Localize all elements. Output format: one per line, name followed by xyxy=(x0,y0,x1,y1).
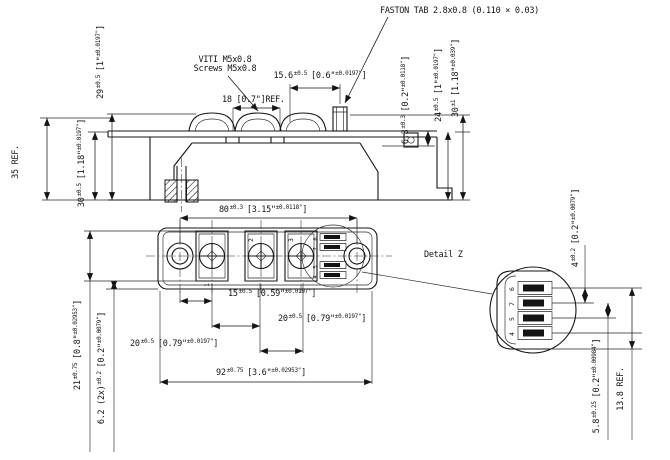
faston-leader-line xyxy=(345,17,388,103)
dim-5-8-label: 5.8±0.25[0.2"±0.00984"] xyxy=(591,339,602,434)
terminal-domes xyxy=(189,113,326,131)
detail-terminal-number-4: 4 xyxy=(508,332,516,336)
detail-tab-contacts xyxy=(523,285,544,337)
dim-30-left-label: 30±0.5[1.18"±0.0197"] xyxy=(76,119,87,207)
dim-6-3-label: 6.3±0.3[0.2"±0.0118"] xyxy=(400,56,411,144)
dim-6-2-label: 6.2 (2x)±0.2[0.2"±0.0079"] xyxy=(96,312,107,424)
detail-z-label: Detail Z xyxy=(424,250,463,260)
mounting-bolt-section xyxy=(165,158,198,212)
technical-drawing-page: FASTON TAB 2.8x0.8 (0.110 × 0.03) VITI M… xyxy=(0,0,670,460)
faston-tab-note: FASTON TAB 2.8x0.8 (0.110 × 0.03) xyxy=(380,6,539,16)
faston-tab-detail-lines xyxy=(333,107,347,131)
dim-35-label: 35 REF. xyxy=(11,145,21,179)
terminal-domes-inner xyxy=(195,119,320,131)
aux-terminal-number-5: 5 xyxy=(313,265,319,268)
detail-terminal-number-7: 7 xyxy=(508,302,516,306)
detail-terminal-number-5: 5 xyxy=(508,317,516,321)
bolt-hatch-right xyxy=(187,180,199,202)
dim-21-label: 21±0.75[0.8"±0.02953"] xyxy=(72,300,83,390)
dim-80-label: 80±0.3[3.15"±0.0118"] xyxy=(219,204,307,215)
module-outline-drawing: FASTON TAB 2.8x0.8 (0.110 × 0.03) VITI M… xyxy=(0,0,670,460)
aux-terminal-number-7: 7 xyxy=(313,247,319,250)
faston-tab-body xyxy=(333,107,347,131)
dim-20-right-label: 20±0.5[0.79"±0.0197"] xyxy=(278,313,366,324)
bolt-hatch-left xyxy=(165,180,177,202)
detail-circle xyxy=(490,267,576,353)
dim-30-right-label: 30±1[1.18"±0.039"] xyxy=(450,39,461,117)
screws-leader-line xyxy=(228,76,258,111)
terminal-number-1: 1 xyxy=(203,283,211,287)
aux-terminal-number-6: 6 xyxy=(313,237,319,240)
top-notches xyxy=(226,137,284,143)
extension-lines xyxy=(40,84,642,452)
module-inner-outline xyxy=(163,232,372,285)
dim-20-left-label: 20±0.5[0.79"±0.0197"] xyxy=(130,338,218,349)
dim-92-label: 92±0.75[3.6"±0.02953"] xyxy=(216,367,306,378)
terminal-number-3: 3 xyxy=(287,238,295,242)
dim-29-label: 29±0.5[1"±0.0197"] xyxy=(95,25,106,99)
dim-13-8-label: 13.8 REF. xyxy=(616,367,626,410)
faston-tab-side xyxy=(333,107,347,131)
detail-z-view xyxy=(362,267,576,353)
terminal-number-2: 2 xyxy=(247,238,255,242)
dim-18-label: 18 [0.7"]REF. xyxy=(222,95,285,105)
dim-15-6-label: 15.6±0.5[0.6"±0.0197"] xyxy=(274,70,367,81)
detail-leader-line xyxy=(362,272,492,294)
dim-24-label: 24±0.5[1"±0.0197"] xyxy=(433,48,444,122)
screws-note-english: Screws M5x0.8 xyxy=(194,64,257,74)
detail-terminal-number-6: 6 xyxy=(508,287,516,291)
dim-4-label: 4±0.2[0.2"±0.0079"] xyxy=(570,189,581,268)
